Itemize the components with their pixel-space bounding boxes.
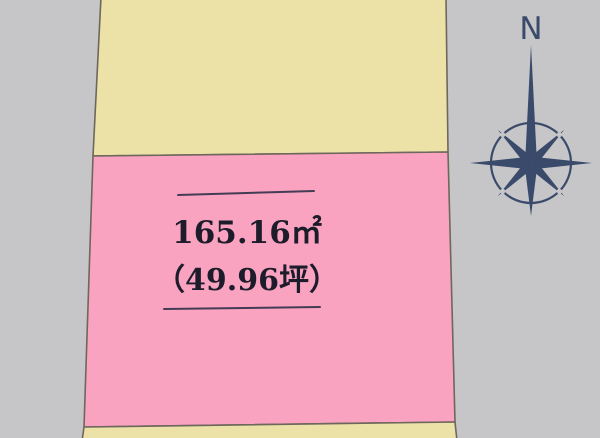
compass-ring-gap-sw xyxy=(500,189,505,194)
area-label-tsubo: （49.96坪） xyxy=(155,263,339,298)
compass-ring-gap-nw xyxy=(500,132,505,137)
compass-north-label: N xyxy=(519,11,542,47)
compass-ring-gap-se xyxy=(557,189,562,194)
compass-ring-gap-ne xyxy=(557,132,562,137)
area-label-m2: 165.16㎡ xyxy=(172,215,322,251)
site-plan-drawing: 165.16㎡ （49.96坪） N xyxy=(0,0,600,438)
land-parcel-upper xyxy=(93,0,448,156)
site-plan-canvas: 165.16㎡ （49.96坪） N xyxy=(0,0,600,438)
